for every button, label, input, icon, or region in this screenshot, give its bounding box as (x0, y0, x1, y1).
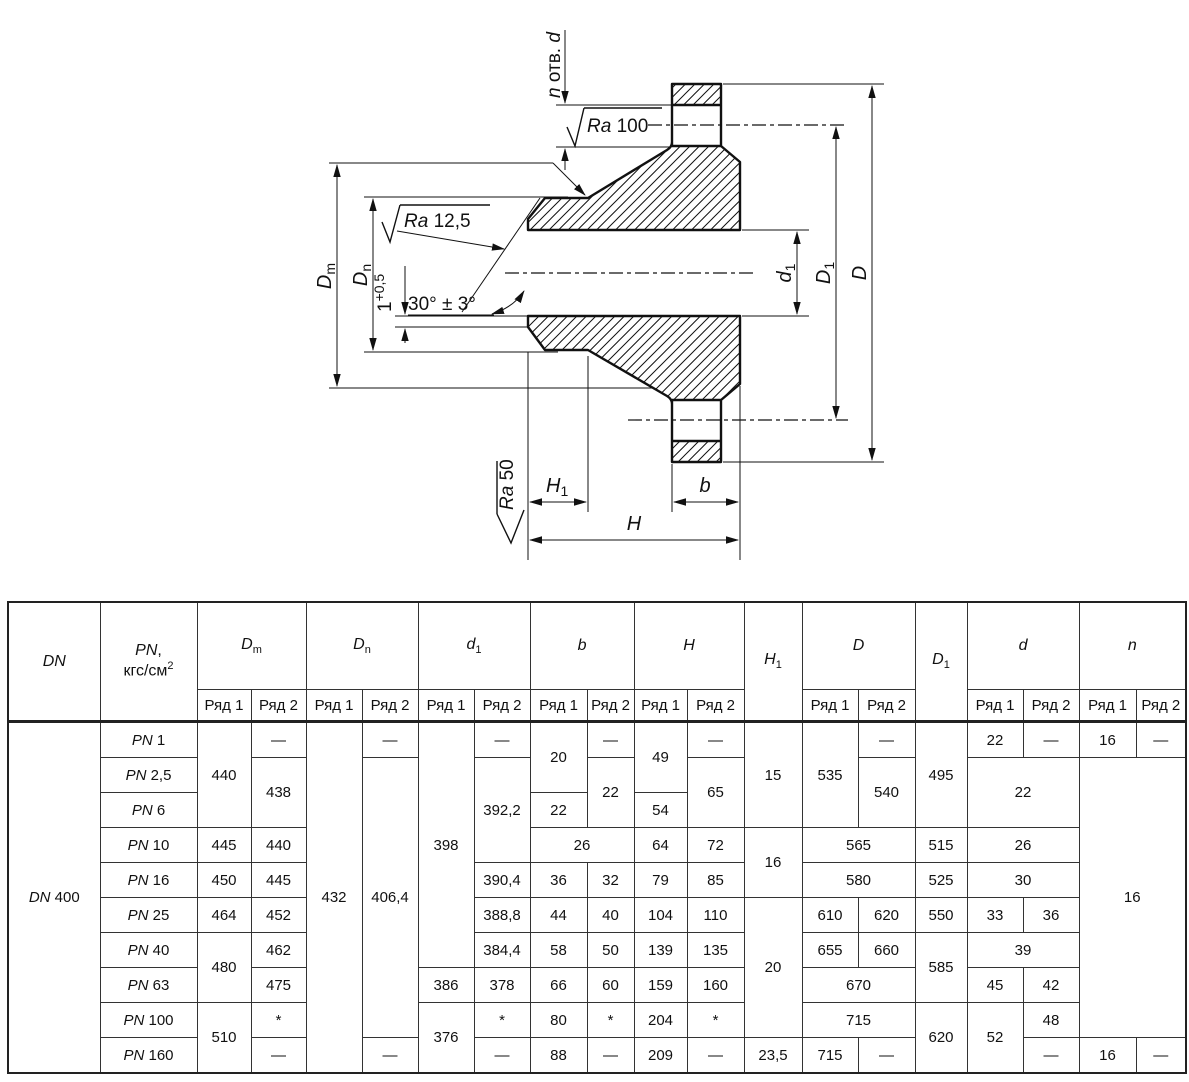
table-cell: PN 63 (100, 968, 197, 1003)
table-cell: 388,8 (474, 898, 530, 933)
table-cell: 50 (587, 933, 634, 968)
table-cell: PN 40 (100, 933, 197, 968)
subheader-cell: Ряд 1 (306, 690, 362, 722)
table-cell: 384,4 (474, 933, 530, 968)
header-cell: Dm (197, 602, 306, 690)
table-cell: 22 (587, 758, 634, 828)
n-holes-label: n отв. d (544, 31, 565, 98)
table-cell: — (1023, 1038, 1079, 1074)
table-cell: 462 (251, 933, 306, 968)
table-cell: 16 (744, 828, 802, 898)
table-cell: 450 (197, 863, 251, 898)
table-cell: 36 (530, 863, 587, 898)
table-cell: 655 (802, 933, 858, 968)
table-cell: 64 (634, 828, 687, 863)
table-cell: 72 (687, 828, 744, 863)
table-cell: 585 (915, 933, 967, 1003)
angle-label: 30° ± 3° (408, 294, 476, 315)
subheader-cell: Ряд 2 (1023, 690, 1079, 722)
subheader-cell: Ряд 1 (530, 690, 587, 722)
subheader-cell: Ряд 2 (474, 690, 530, 722)
table-cell: 33 (967, 898, 1023, 933)
dim-d1-big-label: D1 (813, 262, 837, 284)
table-cell: * (687, 1003, 744, 1038)
table-cell: 620 (858, 898, 915, 933)
table-cell: PN 160 (100, 1038, 197, 1074)
table-cell: 20 (744, 898, 802, 1038)
dim-b-label: b (699, 475, 710, 497)
flange-section-drawing: n отв. d Ra 100 Ra 12,5 Ra 50 30° ± 3° 1… (0, 0, 1189, 598)
dim-h-label: H (627, 513, 642, 535)
chamfer-label: 1+0,5 (371, 274, 396, 312)
table-body: DN 400PN 1440—432—398—20—49—15535—49522—… (8, 722, 1186, 1074)
table-cell: 376 (418, 1003, 474, 1074)
table-cell: 620 (915, 1003, 967, 1074)
table-cell: 580 (802, 863, 915, 898)
subheader-cell: Ряд 1 (634, 690, 687, 722)
table-cell: PN 2,5 (100, 758, 197, 793)
table-cell: PN 10 (100, 828, 197, 863)
table-cell: 16 (1079, 758, 1186, 1038)
table-cell: 670 (802, 968, 915, 1003)
table-cell: 20 (530, 722, 587, 793)
table-cell: — (587, 1038, 634, 1074)
table-cell: 432 (306, 722, 362, 1074)
table-cell: — (1023, 722, 1079, 758)
table-cell: 535 (802, 722, 858, 828)
ra125-label: Ra 12,5 (404, 211, 471, 232)
table-cell: 110 (687, 898, 744, 933)
table-cell: 550 (915, 898, 967, 933)
table-cell: 45 (967, 968, 1023, 1003)
header-cell: Dn (306, 602, 418, 690)
table-cell: 480 (197, 933, 251, 1003)
table-cell: 452 (251, 898, 306, 933)
subheader-cell: Ряд 1 (418, 690, 474, 722)
table-cell: 565 (802, 828, 915, 863)
ra50-label: Ra 50 (497, 459, 518, 510)
dim-h1-label: H1 (546, 475, 568, 499)
table-cell: 22 (967, 722, 1023, 758)
table-cell: 54 (634, 793, 687, 828)
header-cell: D1 (915, 602, 967, 722)
ra100-check-icon (567, 108, 584, 146)
table-cell: 49 (634, 722, 687, 793)
table-cell: 398 (418, 722, 474, 968)
table-cell: 36 (1023, 898, 1079, 933)
table-cell: 30 (967, 863, 1079, 898)
subheader-cell: Ряд 1 (197, 690, 251, 722)
table-cell: PN 6 (100, 793, 197, 828)
subheader-cell: Ряд 2 (1136, 690, 1186, 722)
header-cell: H1 (744, 602, 802, 722)
table-cell: 445 (197, 828, 251, 863)
table-cell: 495 (915, 722, 967, 828)
subheader-cell: Ряд 1 (1079, 690, 1136, 722)
table-cell: 610 (802, 898, 858, 933)
hub-leader-arrow (553, 163, 585, 195)
table-cell: PN 16 (100, 863, 197, 898)
page: { "drawing": { "n_holes_n": "n", "n_hole… (0, 0, 1189, 1082)
table-cell: PN 25 (100, 898, 197, 933)
table-cell: 60 (587, 968, 634, 1003)
table-cell: 48 (1023, 1003, 1079, 1038)
ra125-leader (397, 231, 504, 249)
table-cell: 510 (197, 1003, 251, 1074)
table-cell: 66 (530, 968, 587, 1003)
table-cell: — (858, 722, 915, 758)
table-header: DNPN,кгс/см2DmDnd1bHH1DD1dnРяд 1Ряд 2Ряд… (8, 602, 1186, 722)
table-cell: 23,5 (744, 1038, 802, 1074)
table-cell: 715 (802, 1038, 858, 1074)
subheader-cell: Ряд 2 (362, 690, 418, 722)
dim-d-label: D (849, 266, 871, 280)
table-cell: 32 (587, 863, 634, 898)
table-cell: — (858, 1038, 915, 1074)
table-cell: 160 (687, 968, 744, 1003)
table-cell: 52 (967, 1003, 1023, 1074)
table-cell: 715 (802, 1003, 915, 1038)
table-cell: — (474, 722, 530, 758)
table-cell: 515 (915, 828, 967, 863)
table-cell: 378 (474, 968, 530, 1003)
header-cell: PN,кгс/см2 (100, 602, 197, 722)
table-cell: — (362, 722, 418, 758)
table-cell: 85 (687, 863, 744, 898)
table-cell: 392,2 (474, 758, 530, 863)
table-cell: 139 (634, 933, 687, 968)
header-cell: n (1079, 602, 1186, 690)
table-cell: 26 (530, 828, 634, 863)
table-cell: 438 (251, 758, 306, 828)
table-cell: 58 (530, 933, 587, 968)
table-cell: — (474, 1038, 530, 1074)
table-cell: 390,4 (474, 863, 530, 898)
table-cell: 204 (634, 1003, 687, 1038)
table-cell: 525 (915, 863, 967, 898)
table-cell: — (587, 722, 634, 758)
table-cell: 475 (251, 968, 306, 1003)
subheader-cell: Ряд 2 (251, 690, 306, 722)
table-cell: 440 (197, 722, 251, 828)
dim-dm-label: Dm (314, 263, 338, 289)
table-cell: 22 (530, 793, 587, 828)
table-cell: — (687, 1038, 744, 1074)
table-cell: PN 1 (100, 722, 197, 758)
table-cell: — (251, 722, 306, 758)
table-cell: 42 (1023, 968, 1079, 1003)
subheader-cell: Ряд 1 (802, 690, 858, 722)
table-cell: 104 (634, 898, 687, 933)
table-cell: 22 (967, 758, 1079, 828)
table-cell: 39 (967, 933, 1079, 968)
table-cell: — (687, 722, 744, 758)
table-cell: 406,4 (362, 758, 418, 1038)
table-cell: PN 100 (100, 1003, 197, 1038)
angle-arc (492, 291, 524, 314)
table-cell: 80 (530, 1003, 587, 1038)
header-cell: b (530, 602, 634, 690)
table-cell: 540 (858, 758, 915, 828)
table-cell: 88 (530, 1038, 587, 1074)
table-cell: 445 (251, 863, 306, 898)
header-cell: d1 (418, 602, 530, 690)
table-cell: * (474, 1003, 530, 1038)
table-cell: 16 (1079, 722, 1136, 758)
subheader-cell: Ряд 2 (687, 690, 744, 722)
table-cell: — (362, 1038, 418, 1074)
table-cell: 440 (251, 828, 306, 863)
ra50-check-icon (497, 510, 524, 543)
dim-dn-label: Dn (350, 264, 374, 286)
header-cell: D (802, 602, 915, 690)
table-cell: — (251, 1038, 306, 1074)
table-cell: 135 (687, 933, 744, 968)
table-cell: 79 (634, 863, 687, 898)
table-cell: DN 400 (8, 722, 100, 1074)
subheader-cell: Ряд 2 (858, 690, 915, 722)
table-cell: * (251, 1003, 306, 1038)
table-cell: 464 (197, 898, 251, 933)
dim-d1-small-label: d1 (774, 263, 798, 282)
table-cell: 660 (858, 933, 915, 968)
flange-lower-section (528, 316, 740, 462)
dimension-lines (337, 30, 872, 540)
table-cell: 65 (687, 758, 744, 828)
header-cell: H (634, 602, 744, 690)
table-cell: 15 (744, 722, 802, 828)
table-cell: * (587, 1003, 634, 1038)
table-cell: 159 (634, 968, 687, 1003)
header-cell: DN (8, 602, 100, 722)
table-cell: 44 (530, 898, 587, 933)
subheader-cell: Ряд 1 (967, 690, 1023, 722)
drawing-labels: n отв. d Ra 100 Ra 12,5 Ra 50 30° ± 3° 1… (314, 31, 871, 535)
header-cell: d (967, 602, 1079, 690)
table-cell: 386 (418, 968, 474, 1003)
table-cell: 40 (587, 898, 634, 933)
ra100-label: Ra 100 (587, 116, 648, 137)
flange-upper-section (528, 84, 740, 230)
subheader-cell: Ряд 2 (587, 690, 634, 722)
table-cell: 209 (634, 1038, 687, 1074)
dimensions-table: DNPN,кгс/см2DmDnd1bHH1DD1dnРяд 1Ряд 2Ряд… (7, 601, 1187, 1074)
table-cell: 16 (1079, 1038, 1136, 1074)
table-cell: — (1136, 722, 1186, 758)
table-cell: 26 (967, 828, 1079, 863)
table-cell: — (1136, 1038, 1186, 1074)
ra125-check-icon (382, 205, 400, 242)
